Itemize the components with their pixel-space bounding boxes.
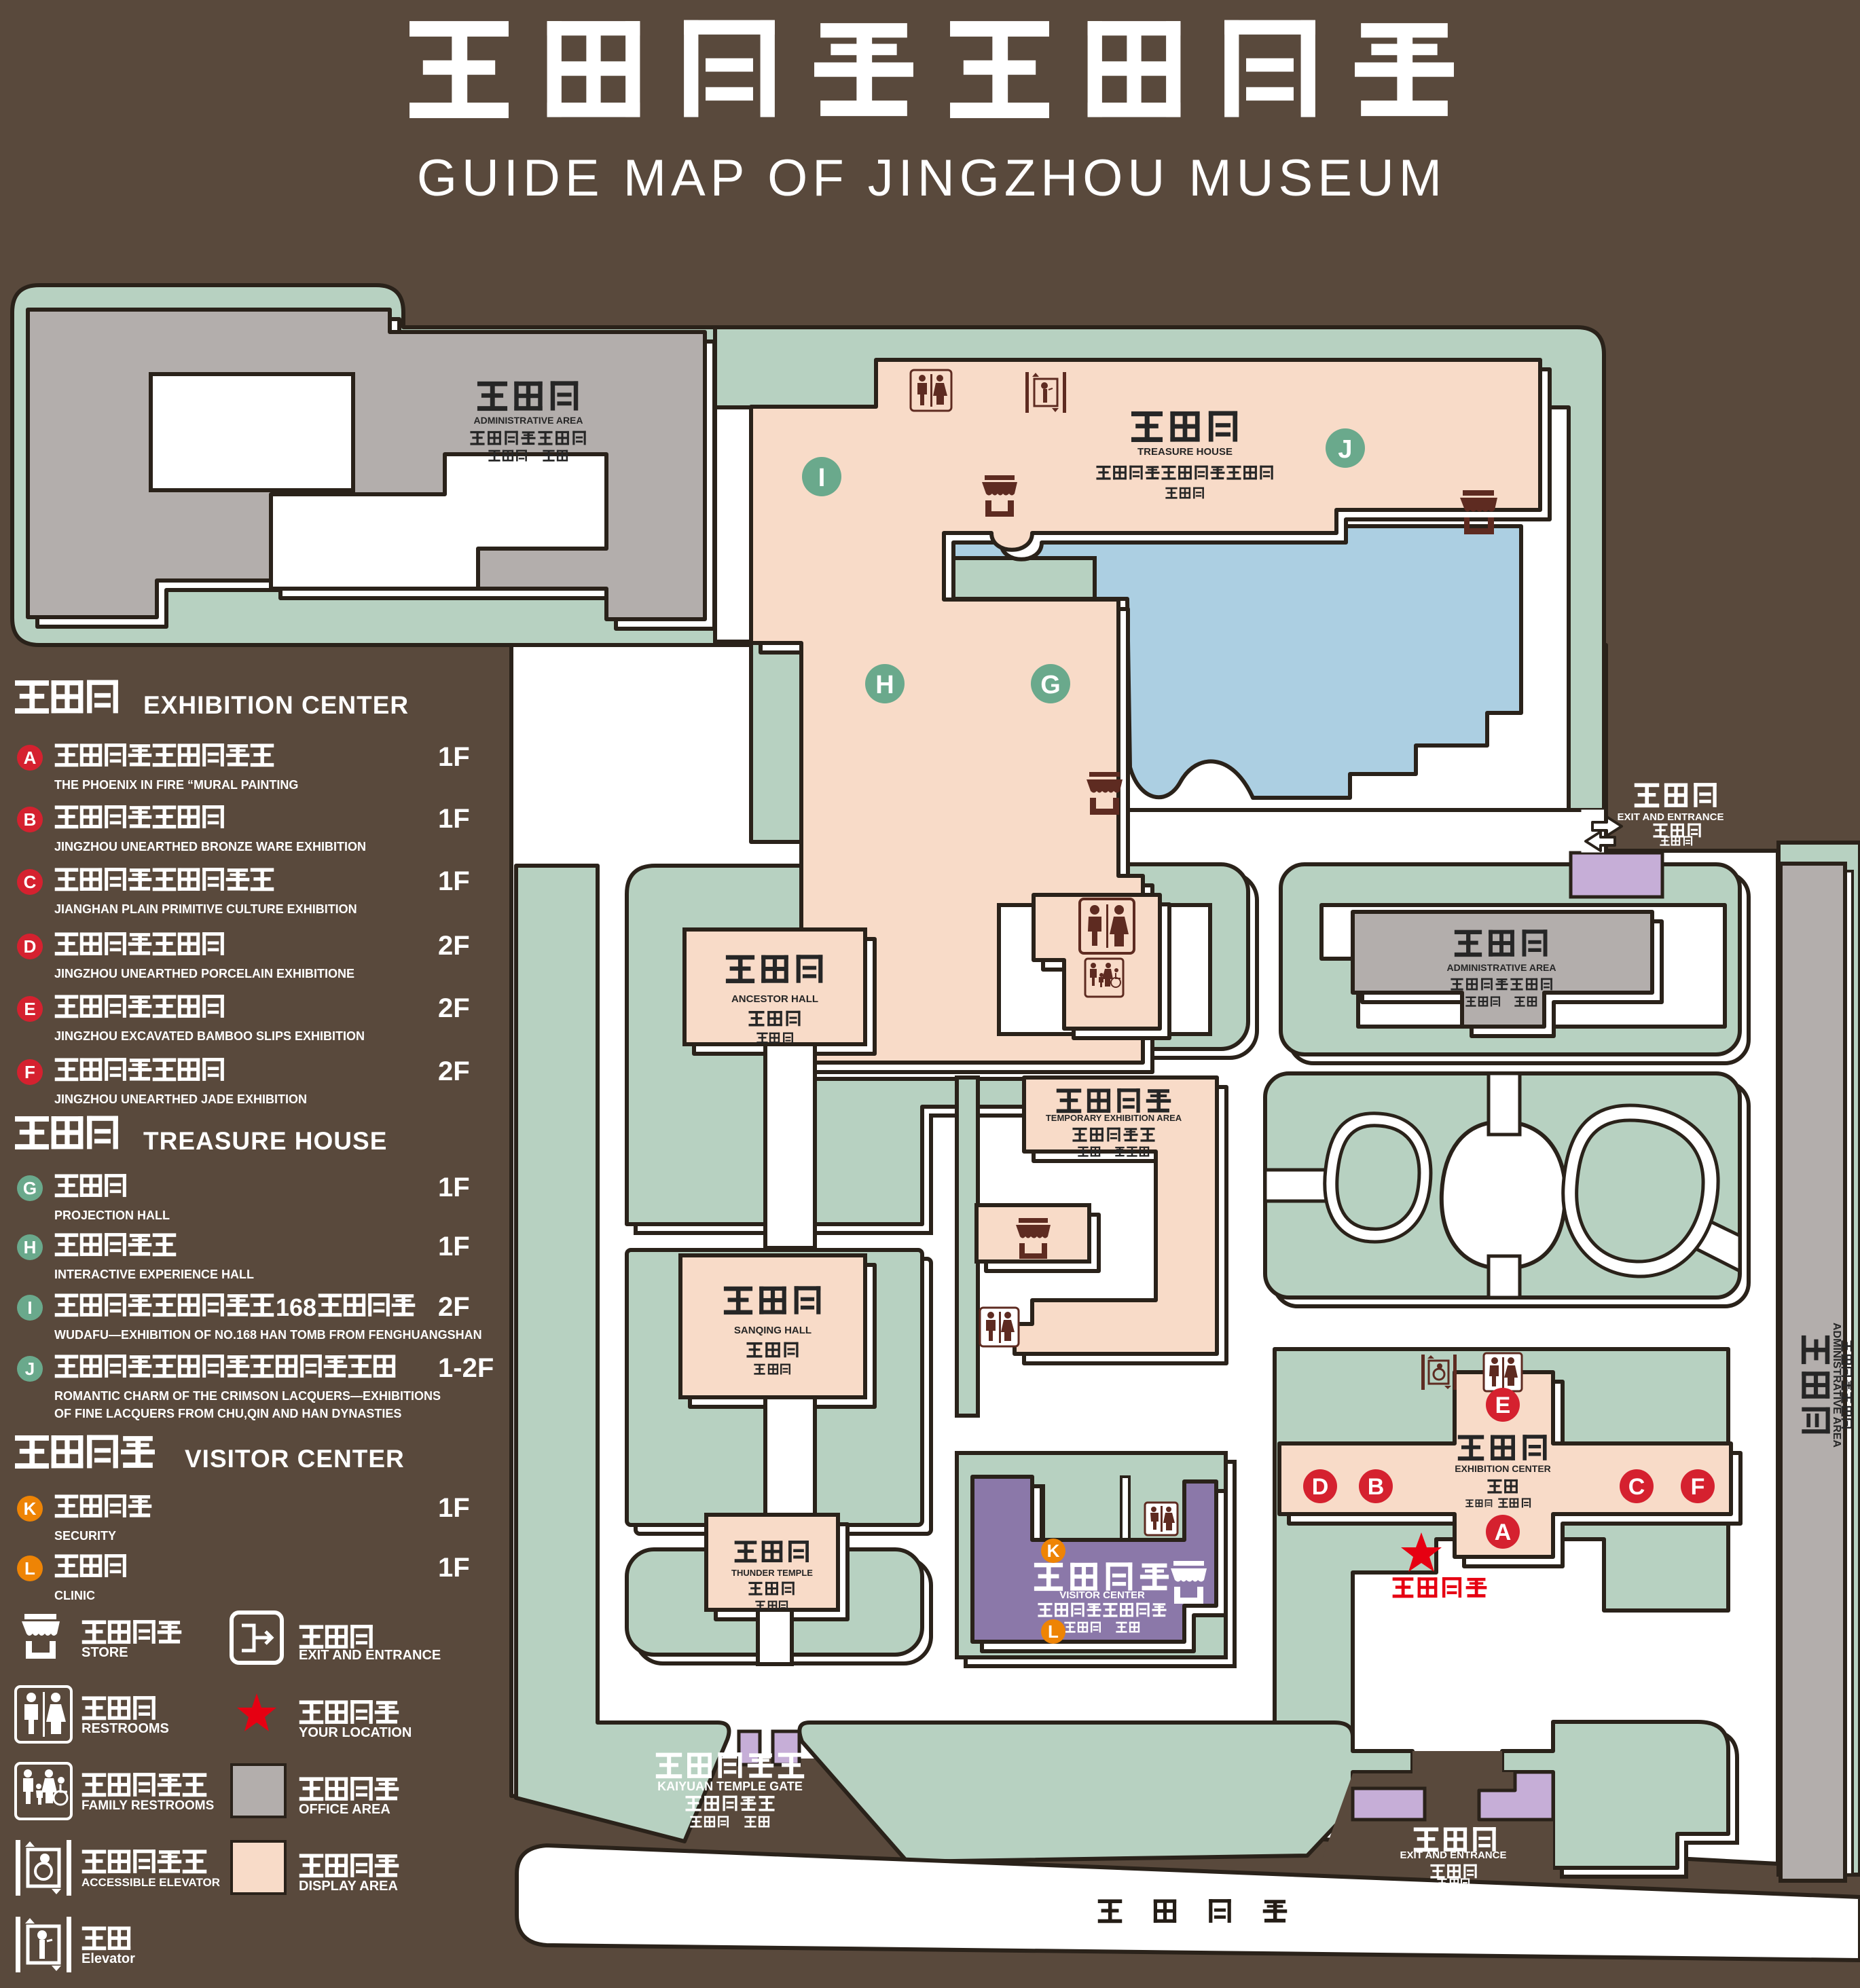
svg-text:EXIT AND ENTRANCE: EXIT AND ENTRANCE — [1400, 1849, 1507, 1861]
svg-text:TREASURE HOUSE: TREASURE HOUSE — [1137, 446, 1233, 458]
svg-text:B: B — [1368, 1474, 1385, 1500]
svg-text:D: D — [1312, 1474, 1329, 1500]
svg-text:ANCESTOR HALL: ANCESTOR HALL — [731, 993, 818, 1005]
svg-text:EXHIBITION CENTER: EXHIBITION CENTER — [143, 691, 409, 719]
svg-text:L: L — [24, 1558, 35, 1579]
svg-text:L: L — [1048, 1621, 1059, 1642]
svg-text:1F: 1F — [438, 1493, 470, 1523]
svg-text:EXIT AND ENTRANCE: EXIT AND ENTRANCE — [299, 1648, 441, 1663]
svg-text:J: J — [1338, 435, 1352, 464]
svg-text:EXIT AND ENTRANCE: EXIT AND ENTRANCE — [1618, 811, 1724, 823]
svg-text:G: G — [1040, 671, 1061, 699]
svg-text:G: G — [23, 1178, 37, 1198]
svg-text:K: K — [1047, 1541, 1060, 1561]
svg-text:F: F — [24, 1062, 35, 1082]
svg-text:WUDAFU—EXHIBITION OF NO.168 HA: WUDAFU—EXHIBITION OF NO.168 HAN TOMB FRO… — [54, 1328, 482, 1342]
svg-text:H: H — [875, 671, 894, 699]
svg-text:1F: 1F — [438, 804, 470, 834]
svg-text:J: J — [25, 1359, 35, 1379]
svg-text:I: I — [818, 464, 826, 492]
svg-text:E: E — [1495, 1393, 1511, 1418]
svg-text:RESTROOMS: RESTROOMS — [81, 1721, 169, 1736]
svg-text:TREASURE HOUSE: TREASURE HOUSE — [143, 1127, 387, 1155]
svg-text:ACCESSIBLE ELEVATOR: ACCESSIBLE ELEVATOR — [81, 1876, 220, 1889]
svg-text:I: I — [27, 1297, 32, 1318]
svg-text:1F: 1F — [438, 866, 470, 896]
svg-text:ROMANTIC CHARM OF THE CRIMSON: ROMANTIC CHARM OF THE CRIMSON LACQUERS—E… — [54, 1389, 441, 1403]
svg-text:INTERACTIVE EXPERIENCE HALL: INTERACTIVE EXPERIENCE HALL — [54, 1268, 254, 1281]
svg-text:YOUR LOCATION: YOUR LOCATION — [299, 1725, 412, 1740]
svg-text:KAIYUAN TEMPLE GATE: KAIYUAN TEMPLE GATE — [657, 1780, 803, 1793]
svg-text:ADMINISTRATIVE AREA: ADMINISTRATIVE AREA — [474, 415, 583, 426]
svg-text:1F: 1F — [438, 742, 470, 772]
svg-text:A: A — [24, 748, 37, 768]
svg-text:GUIDE MAP OF JINGZHOU MUSEUM: GUIDE MAP OF JINGZHOU MUSEUM — [417, 149, 1446, 207]
svg-text:2F: 2F — [438, 993, 470, 1023]
svg-text:F: F — [1691, 1474, 1705, 1500]
svg-text:JINGZHOU UNEARTHED PORCELAIN E: JINGZHOU UNEARTHED PORCELAIN EXHIBITIONE — [54, 967, 354, 980]
svg-text:A: A — [1495, 1520, 1512, 1545]
svg-text:VISITOR CENTER: VISITOR CENTER — [185, 1445, 405, 1473]
svg-text:Elevator: Elevator — [81, 1951, 135, 1966]
svg-text:TEMPORARY EXHIBITION AREA: TEMPORARY EXHIBITION AREA — [1046, 1113, 1182, 1123]
svg-text:OF FINE LACQUERS FROM CHU,QIN: OF FINE LACQUERS FROM CHU,QIN AND HAN DY… — [54, 1407, 401, 1420]
svg-text:K: K — [24, 1498, 37, 1519]
svg-text:OFFICE AREA: OFFICE AREA — [299, 1802, 390, 1817]
svg-text:VISITOR CENTER: VISITOR CENTER — [1059, 1589, 1145, 1601]
svg-text:ADMINISTRATIVE AREA: ADMINISTRATIVE AREA — [1831, 1323, 1842, 1448]
svg-text:E: E — [24, 999, 35, 1019]
svg-text:B: B — [24, 809, 37, 830]
svg-text:1-2F: 1-2F — [438, 1353, 494, 1383]
svg-text:THUNDER TEMPLE: THUNDER TEMPLE — [731, 1568, 813, 1578]
svg-text:ADMINISTRATIVE AREA: ADMINISTRATIVE AREA — [1447, 962, 1556, 973]
svg-text:CLINIC: CLINIC — [54, 1589, 95, 1602]
svg-text:D: D — [24, 936, 37, 957]
svg-text:2F: 2F — [438, 1292, 470, 1322]
svg-text:JINGZHOU UNEARTHED BRONZE WARE: JINGZHOU UNEARTHED BRONZE WARE EXHIBITIO… — [54, 840, 366, 853]
svg-text:1F: 1F — [438, 1553, 470, 1583]
svg-text:C: C — [24, 872, 37, 892]
svg-text:STORE: STORE — [81, 1645, 128, 1660]
svg-text:H: H — [24, 1237, 37, 1257]
svg-text:SECURITY: SECURITY — [54, 1529, 116, 1543]
svg-text:PROJECTION HALL: PROJECTION HALL — [54, 1209, 170, 1222]
svg-text:THE PHOENIX IN FIRE “MURAL PAI: THE PHOENIX IN FIRE “MURAL PAINTING — [54, 778, 298, 792]
svg-text:1F: 1F — [438, 1173, 470, 1202]
svg-text:JIANGHAN PLAIN PRIMITIVE CULTU: JIANGHAN PLAIN PRIMITIVE CULTURE EXHIBIT… — [54, 902, 357, 916]
svg-text:JINGZHOU EXCAVATED BAMBOO SLIP: JINGZHOU EXCAVATED BAMBOO SLIPS EXHIBITI… — [54, 1029, 365, 1043]
svg-text:1F: 1F — [438, 1232, 470, 1262]
svg-text:168: 168 — [276, 1293, 316, 1321]
svg-text:C: C — [1628, 1474, 1645, 1500]
svg-text:JINGZHOU UNEARTHED JADE EXHIBI: JINGZHOU UNEARTHED JADE EXHIBITION — [54, 1092, 307, 1106]
svg-text:FAMILY RESTROOMS: FAMILY RESTROOMS — [81, 1799, 214, 1813]
svg-text:SANQING HALL: SANQING HALL — [734, 1325, 812, 1336]
svg-text:EXHIBITION CENTER: EXHIBITION CENTER — [1455, 1463, 1551, 1474]
svg-text:2F: 2F — [438, 931, 470, 961]
svg-text:DISPLAY AREA: DISPLAY AREA — [299, 1879, 398, 1894]
svg-text:2F: 2F — [438, 1056, 470, 1086]
